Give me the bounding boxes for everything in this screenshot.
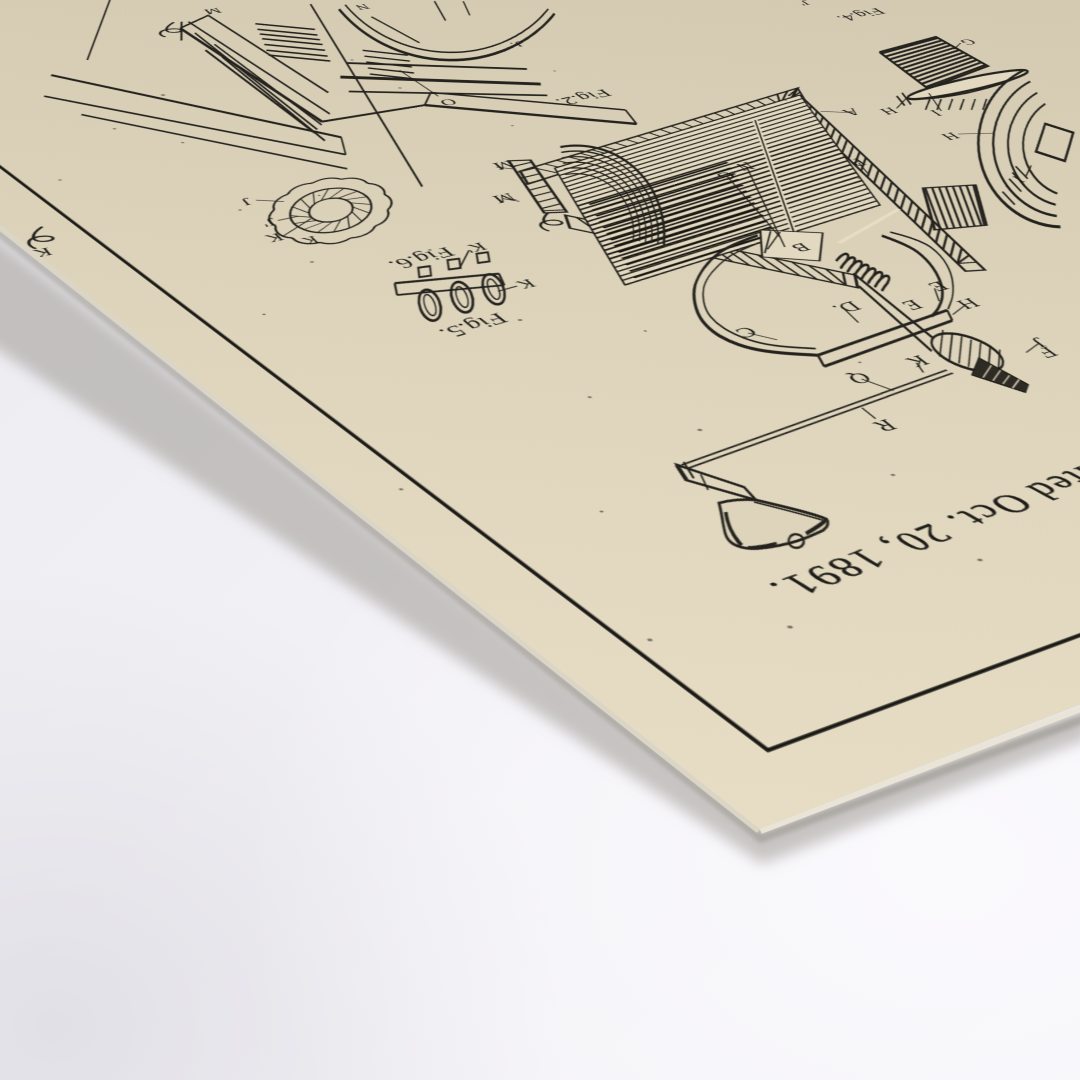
svg-text:Q: Q xyxy=(840,369,880,387)
svg-text:C: C xyxy=(728,324,766,341)
svg-text:K: K xyxy=(296,234,324,246)
svg-text:H: H xyxy=(948,295,988,312)
svg-text:H: H xyxy=(873,105,904,116)
svg-text:K: K xyxy=(510,277,542,291)
svg-text:R: R xyxy=(866,416,906,435)
svg-text:D.: D. xyxy=(826,299,870,317)
svg-text:H: H xyxy=(934,130,966,142)
svg-text:M: M xyxy=(198,6,227,16)
svg-text:Fig.5.: Fig.5. xyxy=(432,310,517,342)
svg-text:J′: J′ xyxy=(792,0,815,7)
svg-text:N: N xyxy=(349,2,375,11)
svg-text:K: K xyxy=(898,352,938,370)
svg-text:J′: J′ xyxy=(254,216,283,229)
svg-text:M: M xyxy=(486,191,524,206)
svg-text:K: K xyxy=(259,231,289,244)
svg-text:I: I xyxy=(924,108,948,118)
svg-text:J: J xyxy=(234,196,258,207)
svg-text:Fig.6.: Fig.6. xyxy=(382,244,463,272)
svg-text:Fig.4.: Fig.4. xyxy=(831,6,892,23)
